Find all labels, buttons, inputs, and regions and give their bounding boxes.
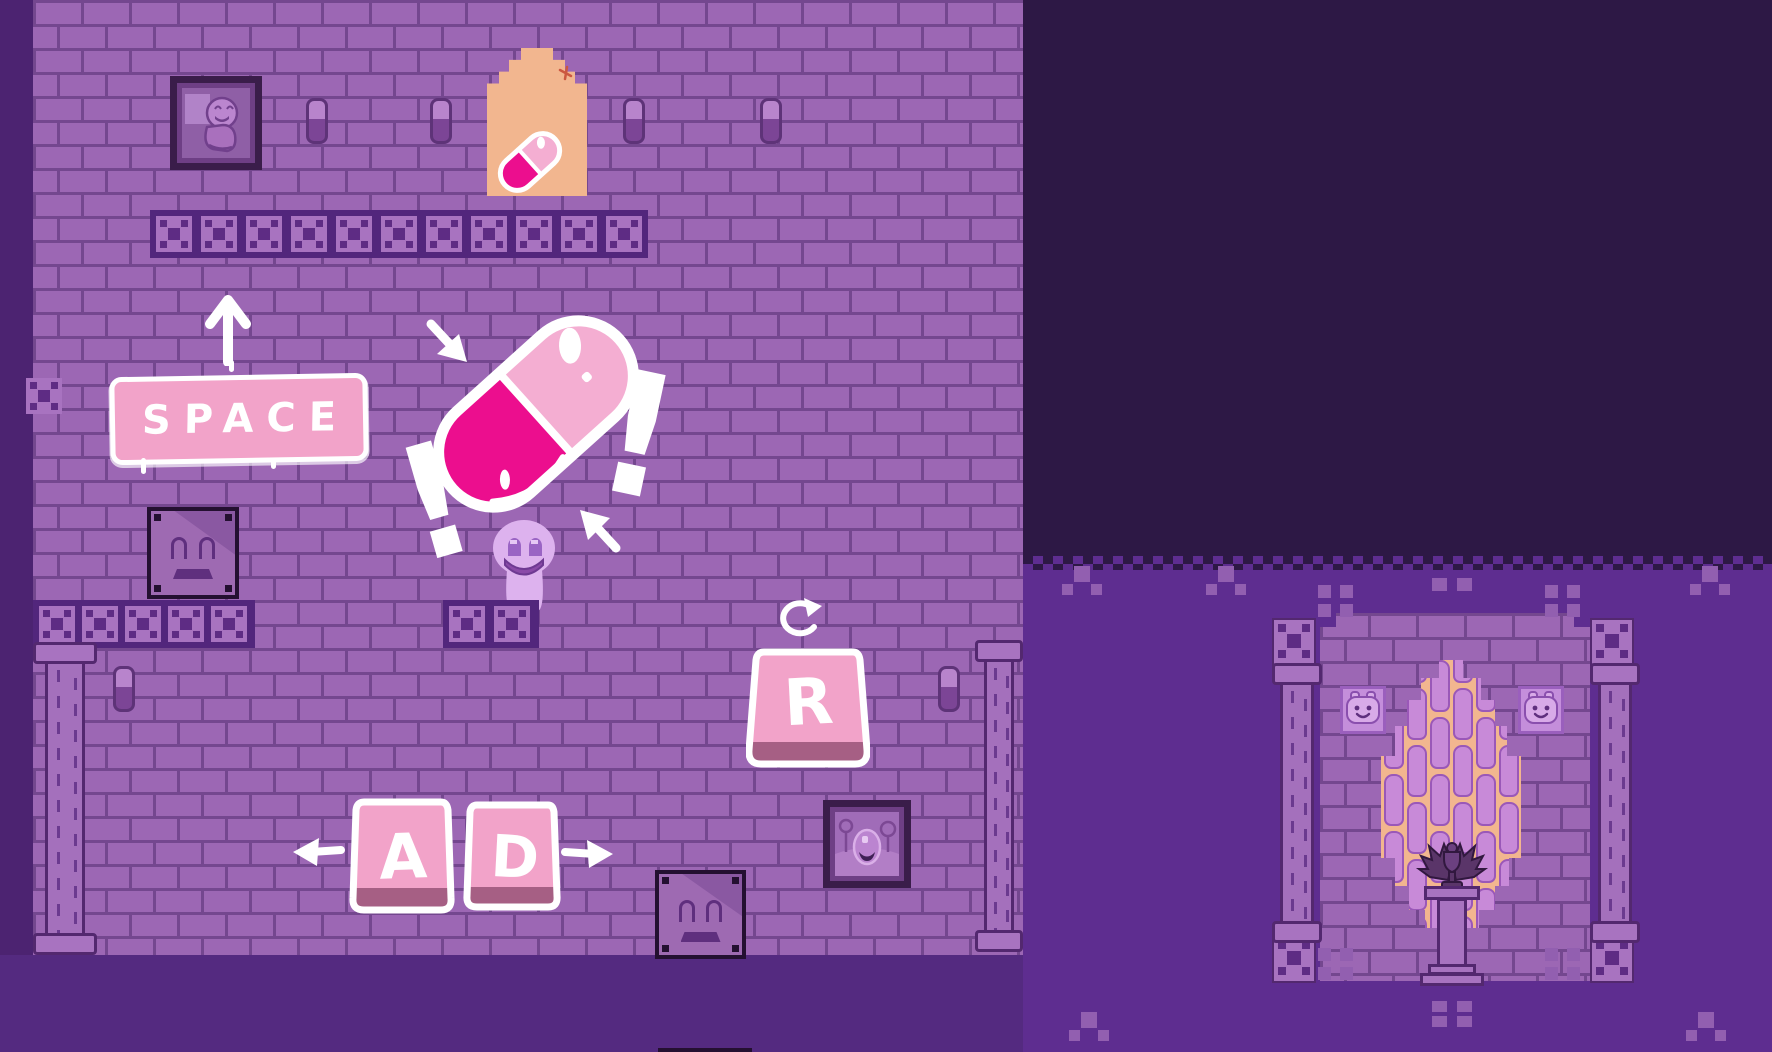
pixel-grid-decoration	[1545, 585, 1581, 619]
keycap-d: D	[462, 799, 562, 913]
platform-bottom-left	[33, 600, 255, 648]
platform-tile	[291, 216, 327, 252]
pixel-cluster	[1069, 1012, 1110, 1042]
platform-tile	[125, 606, 161, 642]
platform-tile	[471, 216, 507, 252]
smiley-plaque	[1518, 686, 1564, 734]
platform-tile	[494, 606, 530, 642]
mosaic-pill-tile	[1407, 745, 1427, 797]
platform-tile	[211, 606, 247, 642]
platform-tile	[246, 216, 282, 252]
smiley-block	[658, 1048, 752, 1052]
pillar-base	[1590, 921, 1640, 943]
pixel-cluster	[1686, 1012, 1727, 1042]
pillar-capital	[1590, 663, 1640, 685]
mosaic-pill-tile	[1476, 774, 1496, 826]
platform-tile	[156, 216, 192, 252]
block-mouth	[173, 569, 213, 579]
block-mouth	[681, 932, 721, 942]
wall-peg	[306, 98, 328, 144]
pillar-shaft	[984, 662, 1014, 930]
plaque-face-icon	[1521, 689, 1561, 731]
floor-band	[0, 955, 1023, 1052]
platform-tile	[336, 216, 372, 252]
pillar-base	[975, 930, 1023, 952]
pixel-grid-decoration	[1545, 948, 1581, 982]
keycap-r-label: R	[782, 665, 835, 741]
block-eye	[171, 537, 187, 559]
wall-peg	[938, 666, 960, 712]
smiley-block	[655, 870, 746, 959]
small-pill-item	[491, 120, 569, 198]
mosaic-pill-tile	[1476, 717, 1496, 769]
mosaic-pill-tile	[1384, 774, 1404, 826]
keycap-r: R	[746, 644, 870, 772]
block-shading	[659, 874, 742, 955]
pixel-cluster	[1206, 566, 1247, 596]
pillar-base	[1272, 921, 1322, 943]
platform-tile	[381, 216, 417, 252]
pixel-grid-decoration	[1432, 578, 1472, 592]
smiley-plaque	[1340, 686, 1386, 734]
dither-boundary	[1023, 544, 1772, 570]
left-arrow-icon	[291, 830, 345, 874]
platform-tile	[606, 216, 642, 252]
pillar-shaft	[1280, 685, 1314, 921]
platform-tile	[168, 606, 204, 642]
wall-peg	[623, 98, 645, 144]
portrait-sitting-art	[182, 88, 250, 158]
pillar-capital	[33, 642, 97, 664]
paint-drip	[141, 458, 146, 474]
portrait-egg-art	[835, 812, 899, 876]
pillar-base	[33, 933, 97, 955]
pixel-cluster	[1690, 566, 1731, 596]
keycap-a: A	[348, 796, 456, 916]
portrait-sitting-character	[170, 76, 262, 170]
keycap-d-label: D	[489, 822, 541, 892]
wall-peg	[430, 98, 452, 144]
left-edge-strip	[0, 0, 33, 955]
platform-tile	[39, 606, 75, 642]
portrait-egg-landscape	[823, 800, 911, 888]
mosaic-pill-tile	[1430, 717, 1450, 769]
shrine-corner-tile	[1272, 618, 1316, 666]
pixel-cluster	[1062, 566, 1103, 596]
platform-tile	[561, 216, 597, 252]
pillar-capital	[1272, 663, 1322, 685]
mosaic-pill-tile	[1453, 688, 1473, 740]
platform-tile	[82, 606, 118, 642]
game-viewport[interactable]: SPACE ! !	[0, 0, 1772, 1052]
tutorial-room-wall: SPACE ! !	[33, 0, 1023, 955]
space-key-sign: SPACE	[109, 373, 368, 465]
pillar-shaft	[1598, 685, 1632, 921]
shrine-corner-tile	[1590, 618, 1634, 666]
stone-pillar-left	[33, 642, 97, 955]
space-key-label: SPACE	[129, 394, 350, 444]
platform-top	[150, 210, 648, 258]
pedestal-base	[1420, 973, 1484, 986]
paint-drip	[271, 458, 276, 469]
rotate-arrow-icon	[768, 596, 824, 648]
keycap-a-label: A	[378, 819, 429, 894]
edge-tile	[26, 378, 62, 414]
up-arrow-icon	[198, 286, 258, 366]
dark-sky-region	[1023, 0, 1772, 556]
platform-tile	[201, 216, 237, 252]
right-arrow-icon	[561, 832, 615, 876]
platform-tile	[449, 606, 485, 642]
pixel-grid-decoration	[1318, 585, 1354, 619]
pixel-grid-decoration	[1432, 1001, 1472, 1029]
shrine-pillar-left	[1272, 663, 1322, 943]
player-character	[485, 518, 565, 613]
block-shading	[151, 511, 235, 595]
pillar-shaft	[45, 664, 85, 933]
platform-tile	[516, 216, 552, 252]
wall-peg	[760, 98, 782, 144]
pedestal-shaft	[1437, 898, 1467, 968]
platform-under-character	[443, 600, 539, 648]
mosaic-pill-tile	[1499, 802, 1519, 854]
paint-drip	[229, 360, 234, 372]
platform-tile	[426, 216, 462, 252]
pixel-grid-decoration	[1318, 948, 1354, 982]
block-eye	[199, 537, 215, 559]
mosaic-pill-tile	[1430, 774, 1450, 826]
block-eye	[679, 900, 695, 922]
scratch-mark-icon	[558, 65, 574, 81]
wall-peg	[113, 666, 135, 712]
mosaic-pill-tile	[1453, 745, 1473, 797]
block-eye	[706, 900, 722, 922]
pillar-capital	[975, 640, 1023, 662]
smiley-block	[147, 507, 239, 599]
shrine-pillar-right	[1590, 663, 1640, 943]
plaque-face-icon	[1343, 689, 1383, 731]
stone-pillar-right	[975, 640, 1023, 952]
big-pill-item	[411, 292, 661, 537]
